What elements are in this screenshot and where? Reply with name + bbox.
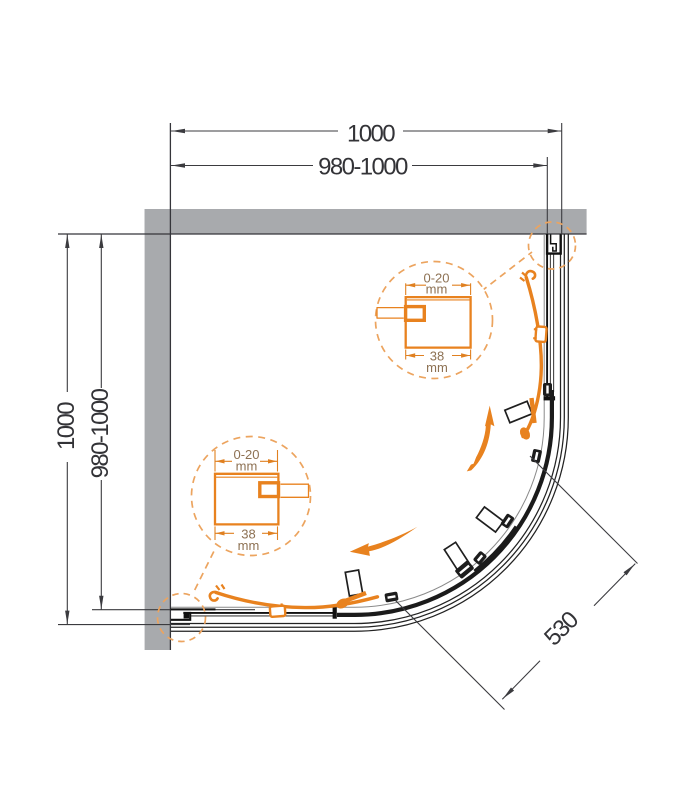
svg-text:1000: 1000 (53, 402, 80, 450)
svg-text:530: 530 (539, 606, 584, 651)
svg-text:mm: mm (236, 459, 258, 474)
svg-text:980-1000: 980-1000 (318, 153, 408, 180)
svg-text:1000: 1000 (347, 120, 395, 147)
svg-text:mm: mm (426, 282, 448, 297)
svg-text:980-1000: 980-1000 (87, 388, 114, 478)
svg-text:mm: mm (238, 538, 260, 553)
svg-text:mm: mm (426, 360, 448, 375)
